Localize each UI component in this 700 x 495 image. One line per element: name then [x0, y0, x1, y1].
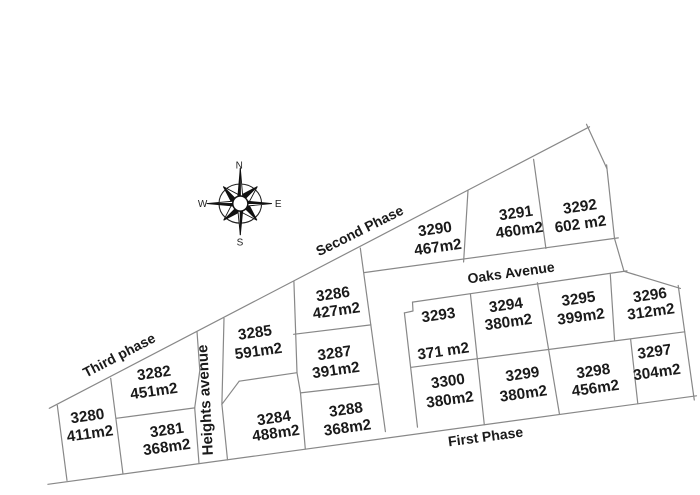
svg-text:N: N [236, 161, 243, 172]
svg-text:S: S [237, 238, 244, 249]
svg-text:E: E [275, 199, 282, 210]
svg-text:W: W [198, 199, 208, 210]
